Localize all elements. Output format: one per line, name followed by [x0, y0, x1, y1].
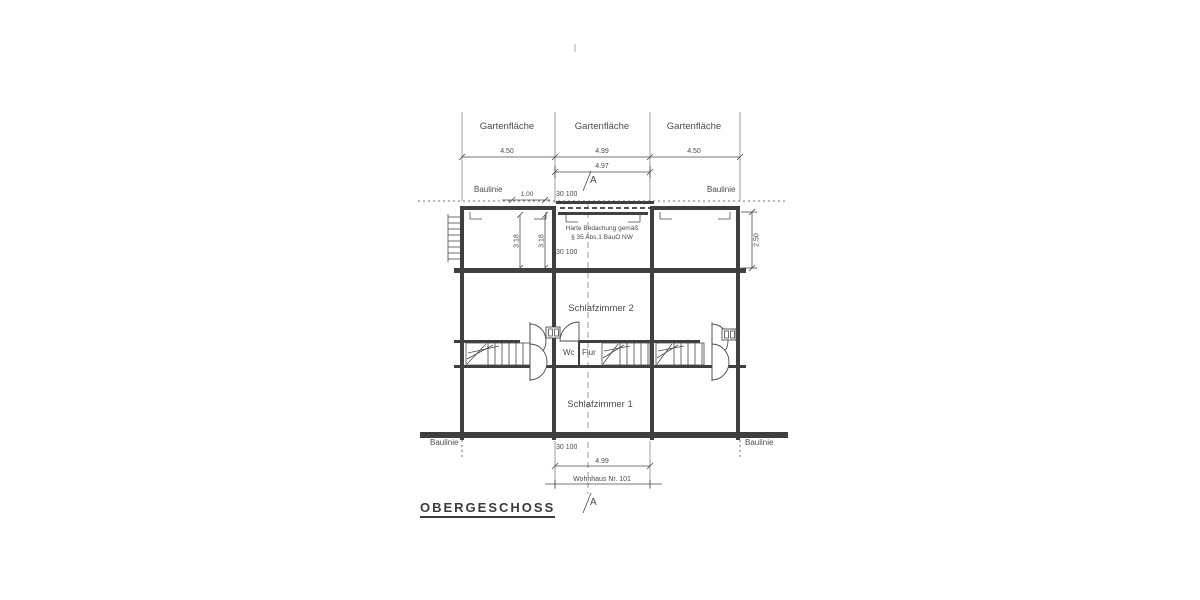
- dim-mid-width: 4.97: [595, 163, 609, 170]
- room-label-bedroom2: Schlafzimmer 2: [568, 304, 633, 314]
- section-marker-a-top: A: [590, 176, 597, 186]
- room-label-bedroom1: Schlafzimmer 1: [567, 400, 632, 410]
- dim-pair-bottom: 30 100: [556, 444, 577, 451]
- chimney-fixture-left: [546, 327, 560, 338]
- baulinie-label-top-right: Baulinie: [707, 186, 735, 194]
- garden-label-middle: Gartenfläche: [575, 122, 629, 132]
- baulinie-label-bottom-left: Baulinie: [430, 439, 458, 447]
- dim-pair-top: 30 100: [556, 191, 577, 198]
- dim-top-left: 4.50: [500, 148, 514, 155]
- door-leaf-hall: [560, 322, 579, 341]
- staircase-middle: [602, 343, 650, 365]
- door-leaves-left-unit: [530, 322, 547, 381]
- top-dimension-lines: [459, 154, 743, 203]
- section-marker-a-bottom: A: [590, 498, 597, 508]
- room-label-wc: Wc: [563, 349, 575, 357]
- roof-note-line2: § 35 Abs.1 BauO NW: [571, 235, 633, 242]
- left-railing-hatch: [448, 214, 460, 262]
- chimney-fixture-right: [722, 329, 736, 340]
- garden-label-right: Gartenfläche: [667, 122, 721, 132]
- floorplan-page: Gartenfläche Gartenfläche Gartenfläche 4…: [0, 0, 1200, 600]
- drawing-title: OBERGESCHOSS: [420, 501, 555, 518]
- baulinie-label-bottom-right: Baulinie: [745, 439, 773, 447]
- baulinie-label-top-left: Baulinie: [474, 186, 502, 194]
- staircase-right: [656, 343, 704, 365]
- dim-room-height-b: 3.18: [539, 234, 546, 248]
- dim-room-height-a: 3.18: [514, 234, 521, 248]
- dim-pair-mid: 30 100: [556, 249, 577, 256]
- house-ref-label: Wohnhaus Nr. 101: [573, 476, 631, 483]
- dim-room-height-right: 2.50: [754, 233, 761, 247]
- dim-top-right: 4.50: [687, 148, 701, 155]
- roof-note-line1: Harte Bedachung gemäß: [566, 226, 639, 233]
- dim-bottom-width: 4.99: [595, 458, 609, 465]
- dim-small-left: 1.00: [521, 192, 534, 199]
- floor-plan-drawing: [0, 0, 1200, 600]
- room-label-hall: Flur: [582, 349, 596, 357]
- garden-label-left: Gartenfläche: [480, 122, 534, 132]
- dim-top-middle: 4.99: [595, 148, 609, 155]
- staircase-left: [466, 343, 540, 365]
